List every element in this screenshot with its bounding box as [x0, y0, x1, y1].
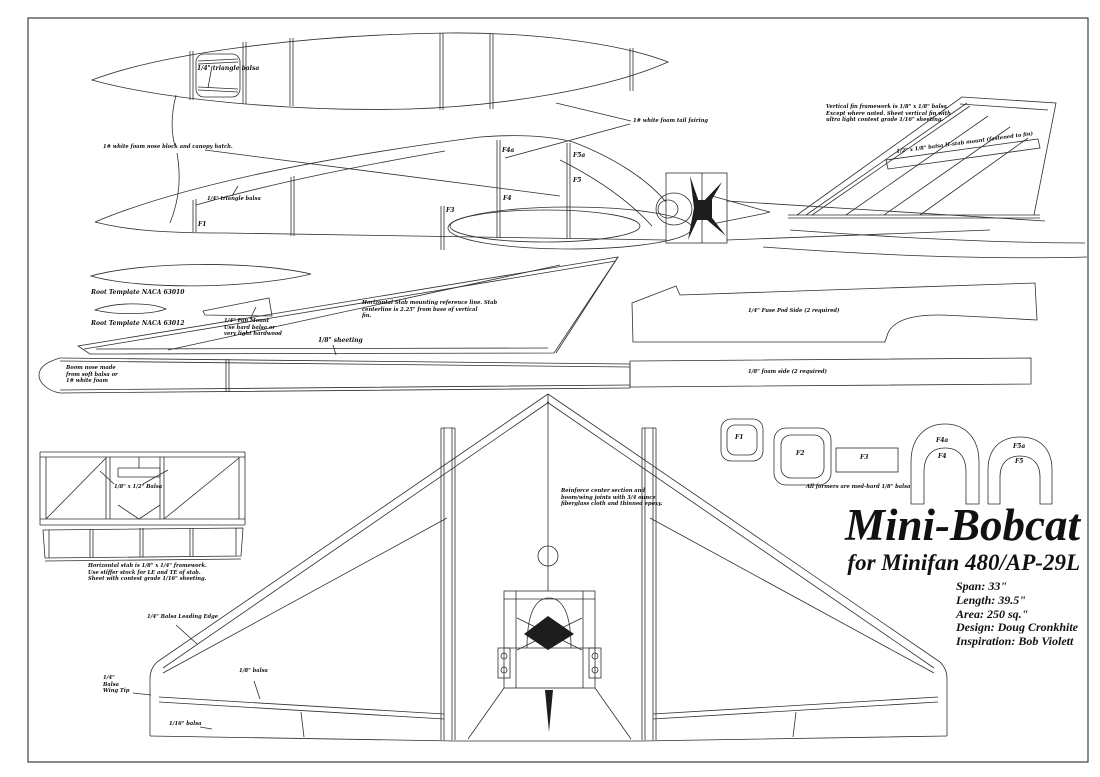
spec-length: Length: 39.5" [956, 594, 1078, 608]
spec-span: Span: 33" [956, 580, 1078, 594]
sideview-f1-label: F1 [198, 221, 206, 228]
tail-cone [545, 690, 553, 732]
label-fuse-pod-side: 1/4" Fuse Pod Side (2 required) [748, 308, 840, 315]
foam-side-pattern [630, 358, 1031, 387]
label-wing-tip: 1/4" Balsa Wing Tip [103, 675, 129, 695]
label-reinforce: Reinforce center section and boom/wing j… [561, 488, 662, 508]
plan-title: Mini-Bobcat [845, 503, 1080, 548]
wing-planform [150, 394, 947, 741]
label-stab-balsa: 1/8" x 1/2" Balsa [114, 484, 162, 491]
spec-inspiration: Inspiration: Bob Violett [956, 635, 1078, 649]
fan-unit-top [468, 591, 631, 739]
sideview-f5a-label: F5a [573, 152, 585, 159]
side-view-fuselage [95, 136, 692, 250]
label-tail-fairing: 1# white foam tail fairing [633, 118, 708, 125]
label-balsa-18: 1/8" balsa [239, 668, 268, 675]
former-f2-label: F2 [796, 450, 804, 457]
tail-boom-side [39, 358, 630, 393]
plan-specs: Span: 33" Length: 39.5" Area: 250 sq." D… [956, 580, 1078, 648]
plan-sheet: 1/4" triangle balsa 1# white foam nose b… [0, 0, 1100, 777]
former-f5a-label: F5a [1013, 443, 1025, 450]
fan-blades-top [524, 616, 574, 650]
spec-area: Area: 250 sq." [956, 608, 1078, 622]
former-patterns [721, 419, 1052, 504]
label-boom-nose: Boom nose made from soft balsa or 1# whi… [66, 365, 118, 385]
former-f4-label: F4 [938, 453, 946, 460]
label-nose-block: 1# white foam nose block and canopy hatc… [103, 144, 233, 151]
former-f5-label: F5 [1015, 458, 1023, 465]
plan-subtitle: for Minifan 480/AP-29L [845, 550, 1080, 575]
former-f4a-label: F4a [936, 437, 948, 444]
label-fan-mount: 1/4" Fan Mount Use hard balsa or very li… [224, 318, 282, 338]
sideview-f4-label: F4 [503, 195, 511, 202]
former-f3-label: F3 [860, 454, 868, 461]
label-balsa-116: 1/16" balsa [169, 721, 201, 728]
label-root-template-top: Root Template NACA 63010 [91, 289, 184, 297]
label-root-template-bottom: Root Template NACA 63012 [91, 320, 184, 328]
sideview-f4a-label: F4a [502, 147, 514, 154]
title-block: Mini-Bobcat for Minifan 480/AP-29L Span:… [845, 503, 1080, 649]
label-foam-side: 1/8" foam side (2 required) [748, 369, 827, 376]
sideview-f5-label: F5 [573, 177, 581, 184]
fan-unit-side [656, 173, 1045, 243]
former-f1-label: F1 [735, 434, 743, 441]
label-stab-reference: Horizontal Stab mounting reference line.… [362, 300, 497, 320]
label-leading-edge: 1/4" Balsa Leading Edge [147, 614, 218, 621]
label-formers-note: All formers are med-hard 1/8" balsa [806, 484, 910, 491]
label-triangle-balsa-side: 1/4" triangle balsa [207, 196, 261, 203]
label-triangle-balsa-top: 1/4" triangle balsa [197, 65, 259, 73]
sideview-f3-label: F3 [446, 207, 454, 214]
label-sheeting: 1/8" sheeting [318, 337, 363, 345]
spec-design: Design: Doug Cronkhite [956, 621, 1078, 635]
top-view-fuselage [92, 33, 668, 110]
label-fin-framework: Vertical fin framework is 1/8" x 1/8" ba… [826, 104, 951, 124]
label-stab-framework: Horizontal stab is 1/8" x 1/4" framework… [88, 563, 207, 583]
stab-framework-detail [40, 452, 245, 561]
